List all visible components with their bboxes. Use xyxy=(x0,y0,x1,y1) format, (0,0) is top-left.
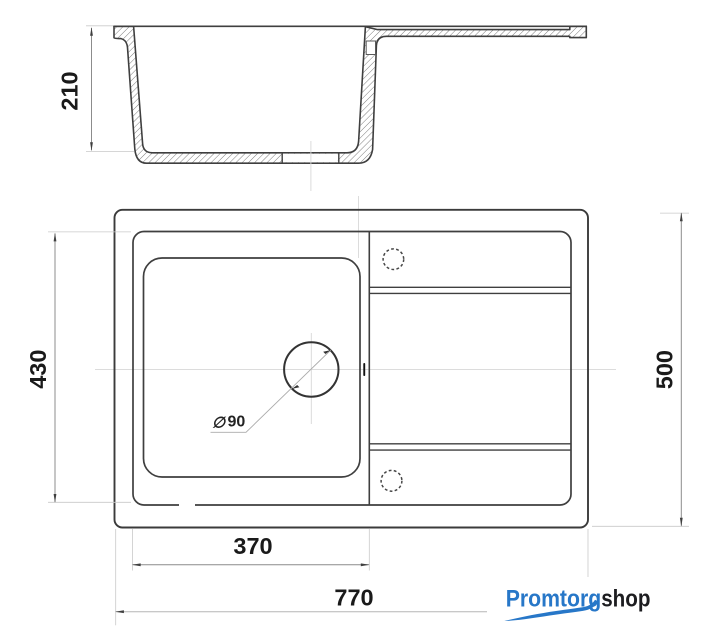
svg-text:500: 500 xyxy=(651,350,677,389)
svg-text:shop: shop xyxy=(601,586,650,613)
svg-text:210: 210 xyxy=(57,71,83,110)
svg-text:430: 430 xyxy=(25,350,51,389)
svg-text:90: 90 xyxy=(228,414,246,431)
svg-text:770: 770 xyxy=(334,585,373,611)
svg-text:∅: ∅ xyxy=(212,415,227,432)
svg-text:370: 370 xyxy=(233,533,272,559)
